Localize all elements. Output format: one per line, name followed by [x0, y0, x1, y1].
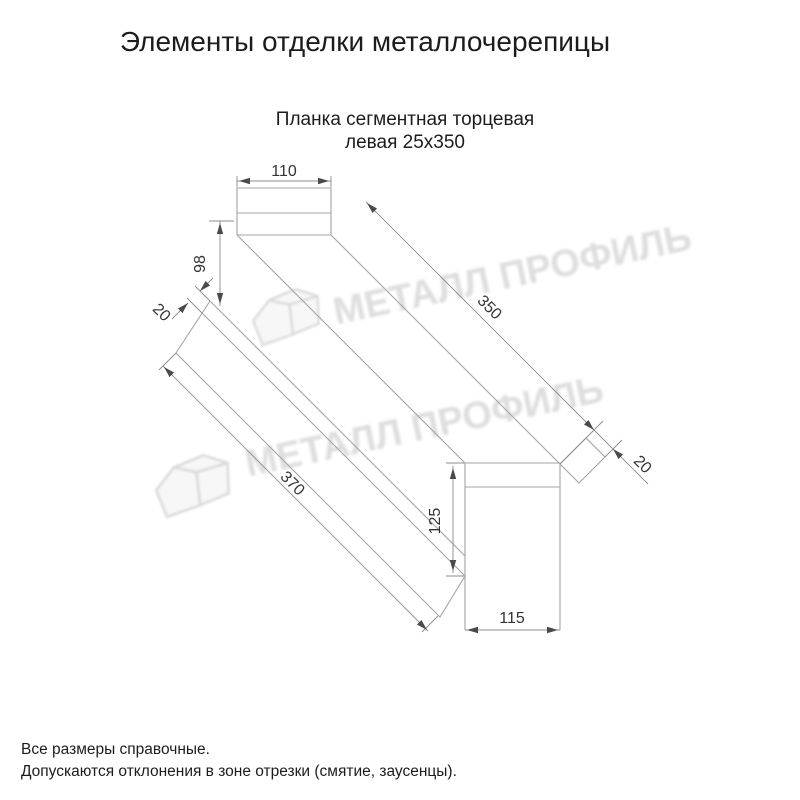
far-end-tab: [237, 188, 331, 235]
near-end-tab: [465, 463, 560, 630]
dim-bottom-width: 115: [499, 610, 525, 627]
dim-right-height: 125: [427, 508, 444, 535]
profile-drawing: 110 98 20 350 370 20 125 115: [0, 0, 800, 800]
dimension-arrows: [162, 178, 623, 633]
dim-left-height: 98: [192, 255, 209, 273]
dim-bottom-length: 370: [277, 468, 308, 499]
dim-left-fold: 20: [149, 301, 174, 326]
dim-top-width: 110: [271, 163, 297, 180]
near-end-fold-tab: [560, 438, 605, 483]
side-face-outline: [176, 301, 465, 617]
top-face-right-edge: [331, 235, 560, 464]
page: { "title": "Элементы отделки металлочере…: [0, 0, 800, 800]
top-face-left-edge: [237, 235, 465, 463]
dimension-lines: [159, 176, 648, 632]
dim-right-fold: 20: [630, 453, 655, 478]
dim-top-length: 350: [474, 292, 505, 323]
profile-outline: [176, 188, 605, 630]
